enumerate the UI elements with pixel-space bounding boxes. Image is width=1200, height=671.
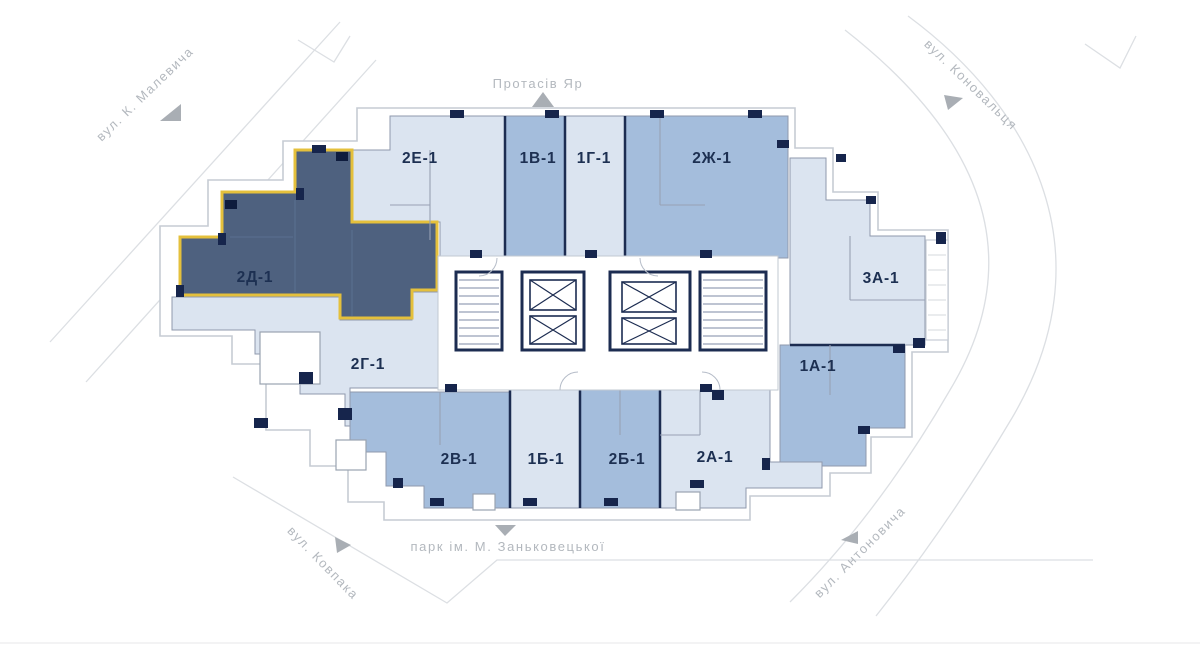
street-label-park: парк ім. М. Заньковецької bbox=[411, 539, 606, 554]
floor-plan-canvas: вул. К. Малевича Протасів Яр вул. Конова… bbox=[0, 0, 1200, 671]
direction-arrow-icon bbox=[335, 537, 351, 553]
apartment-label-1v-1: 1В-1 bbox=[520, 150, 557, 167]
balcony-east bbox=[926, 240, 948, 340]
apartment-3a-1[interactable] bbox=[790, 158, 925, 345]
street-label-protasiv-yar: Протасів Яр bbox=[493, 76, 584, 91]
direction-arrow-icon bbox=[495, 525, 516, 536]
apartment-1b-1[interactable] bbox=[510, 388, 580, 508]
apartment-label-2v-1: 2В-1 bbox=[441, 451, 478, 468]
direction-arrow-icon bbox=[841, 531, 858, 544]
direction-arrow-icon bbox=[160, 104, 181, 121]
apartment-label-2g-1: 2Г-1 bbox=[351, 356, 385, 373]
staircase-east bbox=[700, 272, 766, 350]
apartment-label-2d-1: 2Д-1 bbox=[237, 269, 274, 286]
elevator-bank-east bbox=[610, 272, 690, 350]
apartment-label-1g-1: 1Г-1 bbox=[577, 150, 611, 167]
floor-plan-page: вул. К. Малевича Протасів Яр вул. Конова… bbox=[0, 0, 1200, 671]
street-label-kovpaka: вул. Ковпака bbox=[284, 523, 361, 602]
street-label-malevycha: вул. К. Малевича bbox=[93, 43, 196, 144]
street-label-antonovycha: вул. Антоновича bbox=[811, 503, 909, 601]
apartment-label-3a-1: 3А-1 bbox=[863, 270, 900, 287]
apartment-label-2e-1: 2Е-1 bbox=[402, 150, 438, 167]
apartment-label-2zh-1: 2Ж-1 bbox=[692, 150, 732, 167]
apartment-label-1a-1: 1А-1 bbox=[800, 358, 837, 375]
apartment-label-2a-1: 2А-1 bbox=[697, 449, 734, 466]
apartment-label-2b-1: 2Б-1 bbox=[609, 451, 646, 468]
apartment-label-1b-1: 1Б-1 bbox=[528, 451, 565, 468]
street-label-konovaltsia: вул. Коновальця bbox=[921, 36, 1020, 133]
apartment-2zh-1[interactable] bbox=[625, 116, 788, 258]
apartment-1g-1[interactable] bbox=[565, 116, 625, 258]
apartment-1v-1[interactable] bbox=[505, 116, 565, 258]
elevator-bank-west bbox=[522, 272, 584, 350]
direction-arrow-icon bbox=[944, 95, 963, 110]
direction-arrow-icon bbox=[532, 92, 554, 107]
staircase-west bbox=[456, 272, 502, 350]
